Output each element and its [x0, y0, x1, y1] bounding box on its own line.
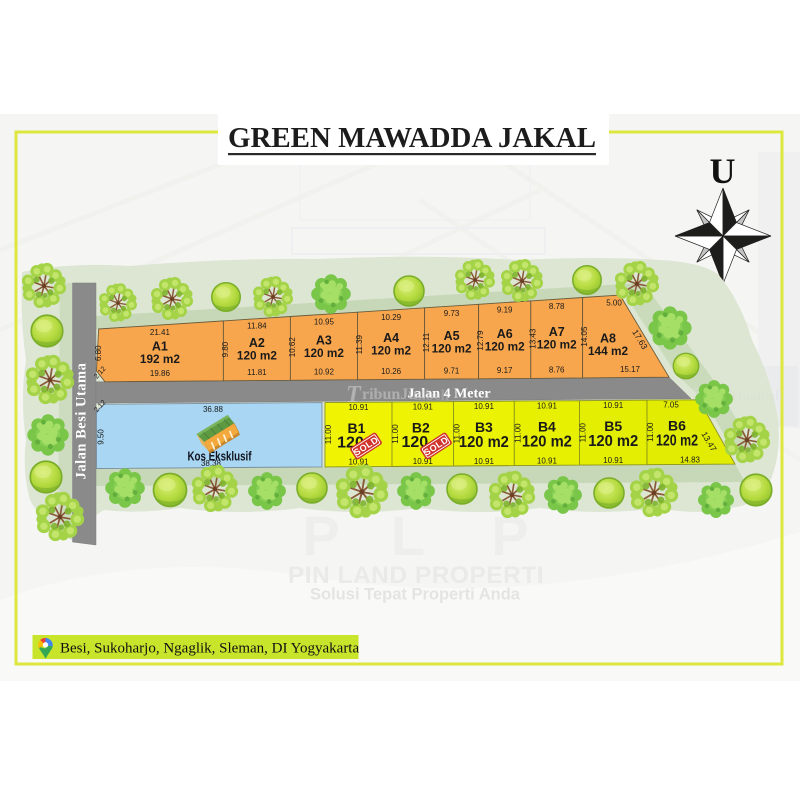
svg-text:192 m2: 192 m2: [140, 352, 180, 366]
svg-text:12.11: 12.11: [422, 332, 431, 352]
svg-text:10.91: 10.91: [413, 402, 434, 411]
svg-text:8.76: 8.76: [549, 366, 565, 375]
svg-text:B4: B4: [538, 419, 556, 435]
svg-text:120 m2: 120 m2: [371, 344, 411, 358]
svg-text:21.41: 21.41: [150, 328, 171, 337]
svg-text:9.50: 9.50: [97, 429, 106, 445]
svg-text:10.91: 10.91: [537, 456, 558, 465]
svg-text:120 m2: 120 m2: [522, 434, 572, 451]
svg-text:10.91: 10.91: [603, 401, 624, 410]
svg-text:120 m2: 120 m2: [237, 349, 277, 363]
svg-text:120 m2: 120 m2: [588, 433, 638, 450]
svg-text:11.84: 11.84: [247, 322, 267, 331]
svg-text:11.00: 11.00: [391, 424, 400, 444]
svg-text:9.71: 9.71: [444, 367, 460, 376]
svg-text:6.80: 6.80: [94, 345, 103, 361]
svg-text:10.91: 10.91: [603, 456, 624, 465]
svg-text:11.81: 11.81: [247, 368, 267, 377]
svg-text:120 m2: 120 m2: [537, 338, 577, 352]
svg-text:120 m2: 120 m2: [459, 434, 509, 451]
svg-text:11.39: 11.39: [355, 334, 364, 354]
svg-text:Jalan Besi Utama: Jalan Besi Utama: [74, 362, 90, 479]
svg-text:B5: B5: [604, 418, 622, 434]
svg-text:7.05: 7.05: [663, 401, 679, 410]
svg-text:36.88: 36.88: [203, 405, 224, 414]
svg-text:120 m2: 120 m2: [432, 342, 472, 356]
svg-text:10.62: 10.62: [288, 337, 297, 358]
svg-text:10.91: 10.91: [537, 401, 558, 410]
svg-text:Solusi Tepat Properti Anda: Solusi Tepat Properti Anda: [310, 586, 521, 604]
svg-text:Besi, Sukoharjo, Ngaglik, Slem: Besi, Sukoharjo, Ngaglik, Sleman, DI Yog…: [60, 641, 359, 657]
svg-text:ribunJu: ribunJu: [362, 386, 417, 403]
svg-text:10.91: 10.91: [348, 403, 369, 412]
svg-text:9.73: 9.73: [444, 309, 460, 318]
svg-text:11.00: 11.00: [579, 422, 588, 442]
svg-text:9.19: 9.19: [497, 306, 513, 315]
svg-text:10.91: 10.91: [474, 457, 495, 466]
svg-text:10.26: 10.26: [381, 367, 402, 376]
svg-text:11.00: 11.00: [646, 422, 655, 442]
svg-text:B6: B6: [668, 418, 686, 434]
svg-text:120 m2: 120 m2: [656, 433, 698, 450]
svg-text:5.00: 5.00: [606, 299, 622, 308]
svg-text:9.80: 9.80: [221, 341, 230, 357]
svg-text:8.78: 8.78: [549, 302, 565, 311]
svg-text:10.29: 10.29: [381, 313, 402, 322]
svg-text:10.91: 10.91: [413, 457, 434, 466]
svg-text:10.95: 10.95: [314, 317, 335, 326]
svg-text:14.83: 14.83: [680, 455, 701, 464]
svg-text:120 m2: 120 m2: [485, 340, 525, 354]
svg-text:GREEN MAWADDA JAKAL: GREEN MAWADDA JAKAL: [228, 122, 596, 154]
svg-text:L: L: [391, 504, 425, 567]
svg-text:B3: B3: [475, 419, 493, 435]
svg-text:11.00: 11.00: [324, 424, 333, 444]
svg-text:120 m2: 120 m2: [304, 346, 344, 360]
svg-text:Kos Eksklusif: Kos Eksklusif: [188, 450, 253, 464]
svg-text:10.92: 10.92: [314, 368, 335, 377]
svg-text:19.86: 19.86: [150, 369, 171, 378]
svg-text:P: P: [302, 504, 339, 567]
svg-text:9.17: 9.17: [497, 366, 513, 375]
svg-text:15.17: 15.17: [620, 365, 641, 374]
svg-text:U: U: [710, 151, 736, 191]
svg-text:144 m2: 144 m2: [588, 344, 628, 358]
svg-text:10.91: 10.91: [474, 402, 495, 411]
